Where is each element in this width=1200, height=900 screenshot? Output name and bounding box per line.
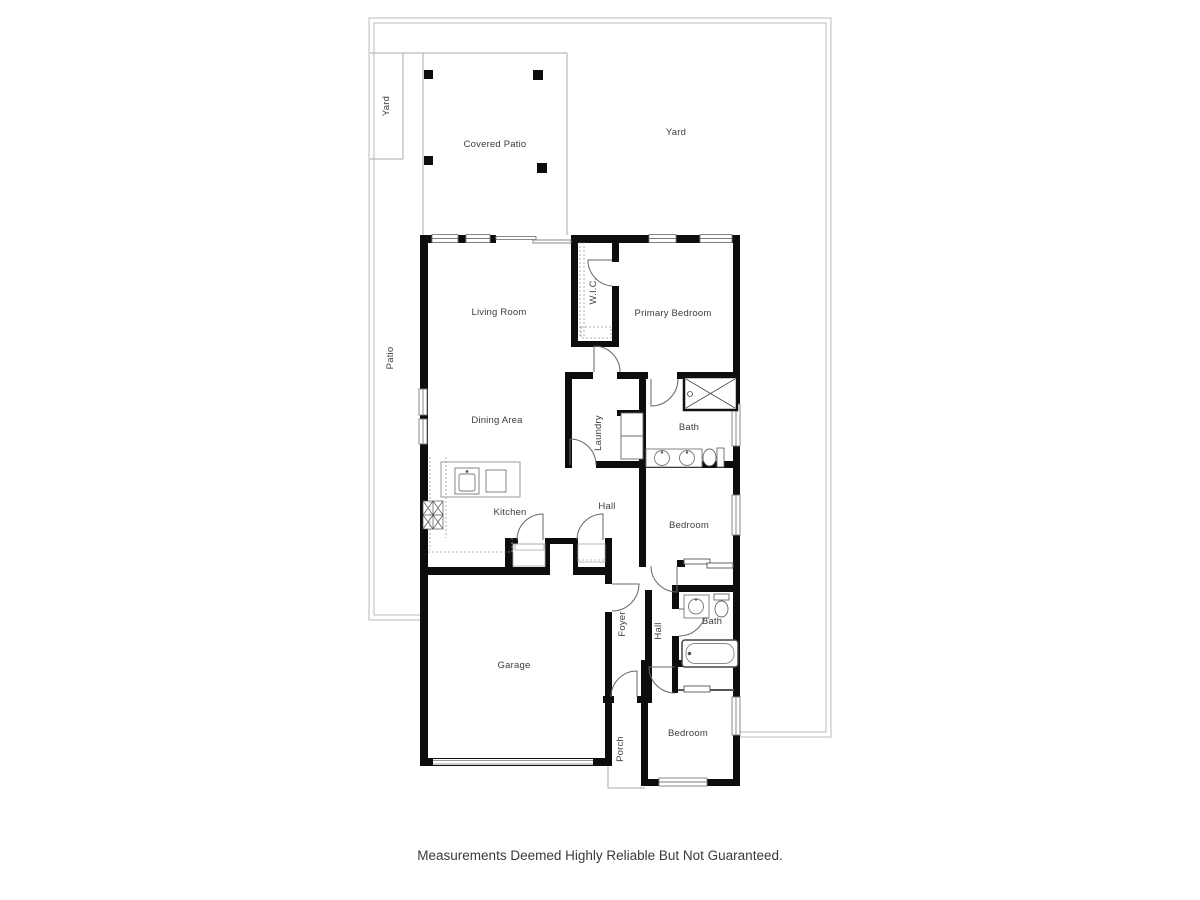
room-label-wic: W.I.C.: [588, 277, 599, 304]
room-label-bath-hall: Bath: [702, 616, 722, 627]
window: [419, 419, 427, 444]
floor-plan-page: Yard Yard Covered Patio Patio Living Roo…: [0, 0, 1200, 900]
room-label-primary-bedroom: Primary Bedroom: [635, 308, 712, 319]
sliding-patio-door: [496, 235, 571, 243]
room-label-yard-side: Yard: [381, 96, 392, 116]
window: [419, 389, 427, 415]
room-label-dining-area: Dining Area: [471, 415, 523, 426]
room-label-hall-upper: Hall: [598, 501, 615, 512]
window: [732, 495, 740, 535]
garage-door: [433, 759, 593, 765]
window: [466, 235, 490, 243]
window: [432, 235, 458, 243]
room-label-yard-main: Yard: [666, 127, 686, 138]
sliding-door: [684, 559, 710, 564]
sliding-door: [707, 563, 733, 568]
room-label-kitchen: Kitchen: [493, 507, 526, 518]
patio-posts: [424, 70, 547, 173]
hall-bath-fixtures: [682, 594, 738, 667]
hall-closet-door: [577, 514, 603, 540]
pantry-shelves: [513, 544, 605, 566]
room-label-living-room: Living Room: [471, 307, 526, 318]
window: [732, 697, 740, 735]
room-labels: Yard Yard Covered Patio Patio Living Roo…: [381, 96, 722, 762]
room-label-bath-primary: Bath: [679, 422, 699, 433]
disclaimer-caption: Measurements Deemed Highly Reliable But …: [0, 848, 1200, 863]
room-label-bedroom-middle: Bedroom: [669, 520, 709, 531]
property-boundary: [369, 18, 831, 737]
double-vanity: [646, 449, 702, 467]
room-label-bedroom-bottom: Bedroom: [668, 728, 708, 739]
range: [423, 501, 443, 529]
room-label-laundry: Laundry: [593, 415, 604, 451]
window: [700, 235, 732, 243]
room-label-garage: Garage: [498, 660, 531, 671]
sink: [684, 595, 709, 618]
washer-dryer: [621, 413, 643, 459]
garage-entry-door: [612, 584, 639, 611]
kitchen-island: [441, 462, 520, 497]
room-label-patio: Patio: [385, 347, 396, 370]
toilet: [703, 448, 724, 467]
floor-plan-drawing: Yard Yard Covered Patio Patio Living Roo…: [0, 0, 1200, 900]
front-door: [611, 671, 637, 697]
window: [659, 778, 707, 786]
shower: [684, 377, 737, 410]
primary-bath-door: [651, 379, 678, 406]
room-label-foyer: Foyer: [617, 611, 628, 636]
room-label-hall-lower: Hall: [653, 622, 664, 639]
toilet: [714, 594, 729, 617]
primary-suite-door: [594, 346, 620, 372]
window: [649, 235, 676, 243]
room-label-porch: Porch: [615, 736, 626, 762]
bedroom-bottom-door: [649, 667, 675, 693]
room-label-covered-patio: Covered Patio: [464, 139, 527, 150]
sliding-door: [684, 686, 710, 692]
bathtub: [682, 640, 738, 667]
